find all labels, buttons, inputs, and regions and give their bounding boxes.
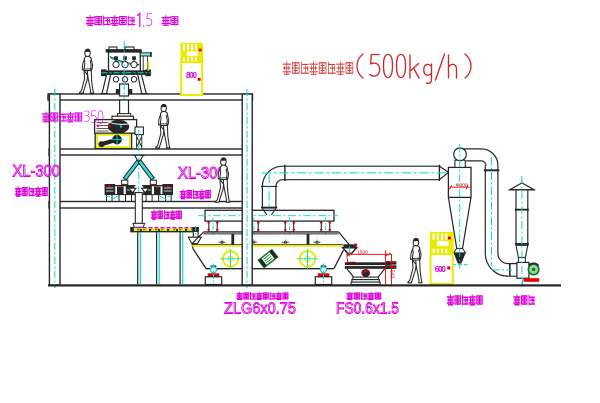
svg-text:1500: 1500 (357, 249, 368, 255)
svg-text:600: 600 (435, 265, 447, 274)
svg-text:XL-300: XL-300 (13, 162, 61, 181)
svg-text:800: 800 (186, 71, 198, 80)
svg-text:ZLG6x0.75: ZLG6x0.75 (224, 301, 296, 318)
svg-text:FS0.6x1.5: FS0.6x1.5 (336, 301, 399, 318)
svg-text:540: 540 (388, 270, 394, 279)
svg-text:Φ300: Φ300 (456, 182, 468, 188)
